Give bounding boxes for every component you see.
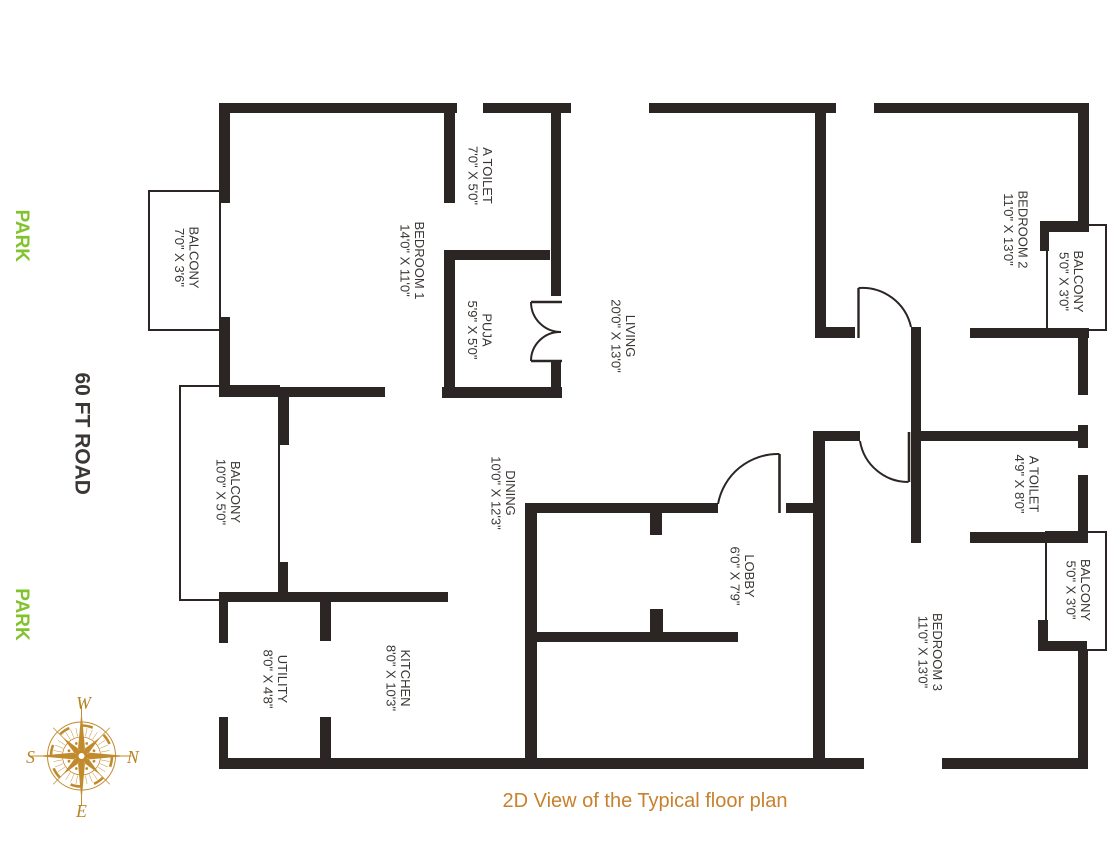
svg-text:5'0" X 3'0": 5'0" X 3'0"	[1056, 252, 1071, 311]
svg-text:11'0" X 13'0": 11'0" X 13'0"	[1001, 193, 1016, 266]
svg-text:S: S	[26, 747, 35, 767]
svg-text:BALCONY: BALCONY	[187, 226, 202, 288]
svg-text:BALCONY: BALCONY	[1078, 559, 1093, 621]
svg-text:8'0" X 4'8": 8'0" X 4'8"	[261, 649, 276, 708]
svg-text:DINING: DINING	[503, 470, 518, 516]
svg-text:BALCONY: BALCONY	[1071, 250, 1086, 312]
svg-text:10'0" X 5'0": 10'0" X 5'0"	[213, 459, 228, 526]
svg-text:LOBBY: LOBBY	[742, 554, 757, 598]
svg-text:2D View of the Typical floor p: 2D View of the Typical floor plan	[503, 790, 788, 812]
svg-text:5'9" X 5'0": 5'9" X 5'0"	[465, 300, 480, 359]
svg-text:KITCHEN: KITCHEN	[398, 649, 413, 706]
svg-text:11'0" X 13'0": 11'0" X 13'0"	[916, 616, 931, 689]
svg-text:BEDROOM 2: BEDROOM 2	[1016, 190, 1031, 268]
svg-text:BEDROOM 1: BEDROOM 1	[412, 221, 427, 299]
svg-text:6'0" X 7'9": 6'0" X 7'9"	[728, 546, 743, 605]
svg-text:14'0" X 11'0": 14'0" X 11'0"	[398, 224, 413, 297]
svg-text:20'0" X 13'0": 20'0" X 13'0"	[609, 299, 624, 373]
svg-text:UTILITY: UTILITY	[275, 655, 290, 704]
svg-text:N: N	[126, 747, 140, 767]
svg-text:PUJA: PUJA	[480, 313, 495, 347]
svg-text:PARK: PARK	[11, 210, 32, 263]
svg-text:PARK: PARK	[11, 588, 32, 641]
svg-text:4'9" X 8'0": 4'9" X 8'0"	[1012, 454, 1027, 513]
svg-text:A TOILET: A TOILET	[480, 147, 495, 204]
svg-text:10'0" X 12'3": 10'0" X 12'3"	[489, 456, 504, 530]
svg-text:BALCONY: BALCONY	[228, 461, 243, 523]
svg-text:7'0" X 5'0": 7'0" X 5'0"	[466, 146, 481, 205]
svg-text:7'0" X 3'6": 7'0" X 3'6"	[172, 228, 187, 287]
svg-text:A TOILET: A TOILET	[1026, 456, 1041, 513]
svg-text:60 FT ROAD: 60 FT ROAD	[71, 372, 94, 495]
svg-text:LIVING: LIVING	[623, 315, 638, 358]
svg-text:8'0" X 10'3": 8'0" X 10'3"	[384, 645, 399, 712]
svg-text:W: W	[76, 693, 92, 713]
svg-text:E: E	[75, 801, 87, 821]
svg-text:5'0" X 3'0": 5'0" X 3'0"	[1063, 560, 1078, 619]
svg-text:BEDROOM 3: BEDROOM 3	[930, 613, 945, 691]
